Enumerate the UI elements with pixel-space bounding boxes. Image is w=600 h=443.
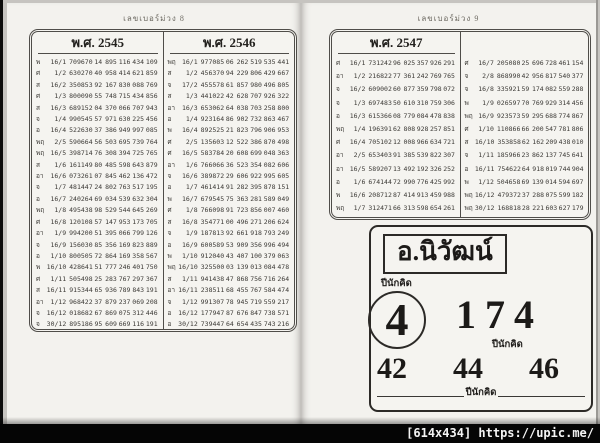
- day-abbrev: ศ: [168, 137, 179, 148]
- draw-row: จ 16/12 018682 67 869 075 312 446: [36, 308, 160, 319]
- three-digit-3: 206: [264, 217, 278, 228]
- first-prize: 428641: [69, 262, 94, 273]
- two-digit: 28: [522, 202, 532, 215]
- first-prize: 766098: [201, 205, 226, 216]
- three-digit-3: 594: [558, 176, 571, 189]
- three-digit-1: 282: [237, 182, 251, 193]
- three-digit-3: 326: [430, 163, 443, 176]
- day-abbrev: อา: [36, 297, 47, 308]
- three-digit-2: 929: [545, 97, 558, 110]
- draw-date: 1/10: [475, 123, 494, 136]
- two-digit: 51: [94, 262, 105, 273]
- three-digit-3: 632: [132, 194, 146, 205]
- draw-rows-2547b: ศ 16/7 205080 25 696 728 461 154 จ 2/8 8…: [465, 57, 586, 215]
- three-digit-3: 822: [430, 149, 443, 162]
- three-digit-4: 641: [572, 149, 585, 162]
- three-digit-2: 271: [250, 217, 264, 228]
- three-digit-3: 744: [559, 163, 572, 176]
- three-digit-2: 732: [250, 114, 264, 125]
- three-digit-4: 606: [277, 160, 291, 171]
- three-digit-4: 624: [277, 217, 291, 228]
- day-abbrev: อ: [36, 251, 47, 262]
- first-prize: 705102: [368, 136, 393, 149]
- draw-date: 30/12: [178, 319, 198, 329]
- two-digit: 50: [393, 97, 403, 110]
- three-digit-1: 654: [237, 319, 251, 329]
- three-digit-4: 800: [277, 103, 291, 114]
- booklet-page-left: เลขเบอร์ม่วง 8 พ.ศ. 2545 พ 16/1 709670 1…: [7, 3, 301, 424]
- draw-date: 1/10: [47, 251, 66, 262]
- day-abbrev: พฤ: [36, 148, 47, 159]
- day-abbrev: อ: [168, 182, 179, 193]
- three-digit-4: 216: [277, 319, 291, 329]
- three-digit-1: 147: [105, 217, 119, 228]
- day-abbrev: ศ: [465, 123, 475, 136]
- first-prize: 168818: [497, 202, 521, 215]
- three-digit-4: 010: [572, 136, 585, 149]
- three-digit-2: 928: [417, 123, 430, 136]
- three-digit-2: 544: [119, 205, 133, 216]
- three-digit-4: 494: [277, 240, 291, 251]
- three-digit-3: 540: [558, 70, 571, 83]
- two-digit: 40: [94, 68, 105, 79]
- three-digit-3: 069: [132, 297, 146, 308]
- three-digit-2: 547: [545, 123, 558, 136]
- three-digit-4: 992: [443, 176, 456, 189]
- three-digit-3: 654: [430, 202, 443, 215]
- three-digit-2: 066: [119, 228, 133, 239]
- three-digit-3: 634: [430, 136, 443, 149]
- day-abbrev: อา: [168, 285, 179, 296]
- first-prize: 912040: [201, 251, 226, 262]
- draw-date: 2/5: [178, 137, 197, 148]
- three-digit-4: 765: [443, 70, 456, 83]
- two-digit: 43: [226, 251, 237, 262]
- draw-row: ศ 1/11 505498 25 283 767 297 367: [36, 274, 160, 285]
- draw-date: 1/7: [47, 182, 66, 193]
- booklet-page-right: เลขเบอร์ม่วง 9 พ.ศ. 2547 ศ 16/1 731242 9…: [301, 3, 596, 424]
- first-prize: 994200: [69, 228, 94, 239]
- three-digit-4: 769: [146, 80, 160, 91]
- day-abbrev: จ: [168, 228, 179, 239]
- three-digit-1: 802: [105, 182, 119, 193]
- draw-row: จ 16/9 156030 85 356 169 823 889: [36, 240, 160, 251]
- three-digit-2: 310: [417, 97, 430, 110]
- first-prize: 589207: [368, 163, 393, 176]
- draw-row: พฤ 16/12 479372 37 288 075 599 182: [465, 189, 586, 202]
- three-digit-2: 763: [119, 182, 133, 193]
- three-digit-1: 777: [105, 262, 119, 273]
- day-abbrev: พ: [168, 194, 179, 205]
- year-title-2547: พ.ศ. 2547: [338, 34, 455, 54]
- watermark-text: [614x434] https://upic.me/: [406, 426, 594, 440]
- three-digit-4: 191: [146, 319, 160, 329]
- three-digit-4: 567: [146, 251, 160, 262]
- day-abbrev: ศ: [36, 68, 47, 79]
- first-prize: 766066: [201, 160, 226, 171]
- two-digit: 36: [226, 160, 237, 171]
- three-digit-3: 459: [430, 189, 443, 202]
- three-digit-4: 988: [443, 189, 456, 202]
- three-digit-3: 379: [264, 251, 278, 262]
- day-abbrev: จ: [336, 97, 346, 110]
- two-digit: 57: [94, 114, 105, 125]
- draw-row: ศ 1/3 800090 55 748 715 434 856: [36, 91, 160, 102]
- day-abbrev: อ: [36, 194, 47, 205]
- day-abbrev: พ: [168, 251, 179, 262]
- draw-date: 2/8: [475, 70, 494, 83]
- three-digit-2: 598: [417, 202, 430, 215]
- draw-row: ส 16/8 354771 00 496 271 206 624: [168, 217, 292, 228]
- day-abbrev: อ: [465, 163, 475, 176]
- two-digit: 53: [226, 240, 237, 251]
- three-digit-4: 472: [146, 171, 160, 182]
- three-digit-1: 025: [403, 57, 416, 70]
- draw-row: อา 1/12 968422 37 879 237 069 208: [36, 297, 160, 308]
- two-digit: 65: [94, 285, 105, 296]
- three-digit-2: 695: [119, 137, 133, 148]
- two-digit: 60: [393, 83, 403, 96]
- draw-date: 2/5: [346, 149, 365, 162]
- three-digit-2: 359: [417, 83, 430, 96]
- three-digit-4: 867: [572, 110, 585, 123]
- three-digit-2: 116: [119, 57, 133, 68]
- three-digit-1: 990: [403, 176, 416, 189]
- draw-row: ศ 2/5 135603 12 522 386 870 498: [168, 137, 292, 148]
- draw-date: 16/2: [47, 80, 66, 91]
- draw-row: พ 16/1 709670 14 895 116 434 109: [36, 57, 160, 68]
- day-abbrev: จ: [465, 83, 475, 96]
- three-digit-1: 522: [237, 137, 251, 148]
- three-digit-3: 312: [132, 308, 146, 319]
- three-digit-1: 609: [105, 319, 119, 329]
- three-digit-3: 645: [132, 205, 146, 216]
- prediction-label-top: ปีนักคิด: [381, 276, 591, 291]
- prediction-label-mid: ปีนักคิด: [492, 337, 543, 352]
- first-prize: 895186: [69, 319, 94, 329]
- three-digit-2: 953: [119, 217, 133, 228]
- three-digit-2: 699: [250, 148, 264, 159]
- draw-date: 16/2: [346, 83, 365, 96]
- three-digit-2: 703: [250, 103, 264, 114]
- three-digit-3: 517: [132, 182, 146, 193]
- draw-row: จ 1/4 990545 57 971 630 225 456: [36, 114, 160, 125]
- first-prize: 754622: [497, 163, 521, 176]
- three-digit-3: 643: [132, 160, 146, 171]
- two-digit: 12: [226, 137, 237, 148]
- three-digit-4: 460: [277, 205, 291, 216]
- three-digit-3: 314: [558, 97, 571, 110]
- three-digit-3: 535: [264, 57, 278, 68]
- three-digit-4: 306: [443, 97, 456, 110]
- three-digit-2: 688: [545, 110, 558, 123]
- first-prize: 110866: [497, 123, 522, 136]
- two-digit: 66: [393, 202, 403, 215]
- three-digit-3: 745: [558, 149, 571, 162]
- two-digit: 91: [226, 205, 237, 216]
- three-digit-1: 864: [105, 251, 119, 262]
- first-prize: 177947: [201, 308, 226, 319]
- two-digit: 87: [393, 189, 403, 202]
- two-digit: 78: [226, 297, 237, 308]
- three-digit-2: 767: [119, 274, 133, 285]
- prediction-number: 46: [529, 354, 559, 384]
- three-digit-2: 237: [119, 297, 133, 308]
- three-digit-1: 200: [532, 123, 545, 136]
- circled-number-badge: 4: [368, 291, 426, 349]
- three-digit-1: 361: [403, 70, 416, 83]
- two-digit: 68: [226, 285, 237, 296]
- three-digit-1: 909: [237, 240, 251, 251]
- scan-bottom-shadow: [0, 417, 600, 424]
- three-digit-2: 603: [545, 202, 558, 215]
- three-digit-4: 721: [443, 136, 456, 149]
- day-abbrev: ศ: [36, 217, 47, 228]
- draw-row: ศ 16/1 731242 96 025 357 926 291: [336, 57, 457, 70]
- first-prize: 461414: [201, 182, 226, 193]
- draw-row: จ 1/7 481447 24 802 763 517 195: [36, 182, 160, 193]
- year-column-2547-second-half: ศ 16/7 205080 25 696 728 461 154 จ 2/8 8…: [460, 32, 589, 217]
- day-abbrev: จ: [168, 297, 179, 308]
- three-digit-3: 769: [430, 70, 443, 83]
- three-digit-3: 082: [264, 160, 278, 171]
- three-digit-4: 879: [146, 160, 160, 171]
- three-digit-3: 401: [132, 262, 146, 273]
- first-prize: 600589: [201, 240, 226, 251]
- draw-date: 1/8: [47, 205, 66, 216]
- first-prize: 481447: [69, 182, 94, 193]
- three-digit-4: 697: [572, 176, 585, 189]
- three-digit-3: 799: [132, 228, 146, 239]
- three-digit-3: 759: [430, 97, 443, 110]
- two-digit: 08: [393, 110, 403, 123]
- three-digit-4: 109: [146, 57, 160, 68]
- day-abbrev: ส: [36, 80, 47, 91]
- draw-row: พฤ 16/10 325500 03 139 013 084 478: [168, 262, 292, 273]
- draw-row: พ 16/10 428641 51 777 246 401 750: [36, 262, 160, 273]
- first-prize: 590664: [69, 137, 94, 148]
- three-digit-4: 072: [443, 83, 456, 96]
- three-digit-2: 014: [545, 176, 558, 189]
- three-digit-3: 136: [132, 171, 146, 182]
- three-digit-1: 610: [403, 97, 416, 110]
- three-digit-3: 843: [132, 285, 146, 296]
- three-digit-1: 262: [237, 57, 251, 68]
- three-digit-4: 764: [146, 137, 160, 148]
- three-digit-1: 496: [237, 217, 251, 228]
- first-prize: 353858: [497, 136, 521, 149]
- first-prize: 187813: [201, 228, 226, 239]
- two-digit: 91: [393, 149, 403, 162]
- three-digit-2: 192: [417, 163, 430, 176]
- day-abbrev: ส: [168, 217, 179, 228]
- day-abbrev: จ: [465, 149, 475, 162]
- footer-line-left: [377, 396, 464, 397]
- draw-date: 1/9: [475, 97, 494, 110]
- three-digit-3: 627: [559, 202, 572, 215]
- day-abbrev: จ: [336, 83, 346, 96]
- draw-row: จ 1/11 185966 23 862 137 745 641: [465, 149, 586, 162]
- three-digit-4: 498: [277, 137, 291, 148]
- draw-date: 16/12: [475, 189, 495, 202]
- two-digit: 94: [226, 68, 237, 79]
- draw-date: 1/11: [475, 149, 494, 162]
- three-digit-3: 621: [132, 68, 146, 79]
- three-digit-1: 356: [105, 240, 119, 251]
- draw-date: 16/7: [178, 194, 197, 205]
- three-digit-2: 394: [119, 148, 133, 159]
- day-abbrev: ส: [168, 91, 179, 102]
- three-digit-3: 258: [264, 103, 278, 114]
- first-prize: 800505: [69, 251, 94, 262]
- first-prize: 609002: [368, 83, 393, 96]
- three-digit-4: 456: [572, 97, 585, 110]
- three-digit-4: 605: [277, 171, 291, 182]
- three-digit-1: 370: [105, 103, 119, 114]
- three-digit-3: 478: [430, 110, 443, 123]
- draw-row: อ 1/7 461414 91 282 395 878 151: [168, 182, 292, 193]
- first-prize: 026597: [497, 97, 522, 110]
- first-prize: 653403: [368, 149, 393, 162]
- page-header-right: เลขเบอร์ม่วง 9: [301, 3, 596, 25]
- footer-line-right: [498, 396, 585, 397]
- draw-row: ศ 16/4 705102 12 008 966 634 721: [336, 136, 457, 149]
- two-digit: 95: [94, 319, 105, 329]
- three-digit-3: 599: [559, 189, 572, 202]
- day-abbrev: พฤ: [168, 262, 179, 273]
- day-abbrev: ศ: [36, 91, 47, 102]
- three-digit-2: 357: [417, 57, 430, 70]
- two-digit: 64: [226, 103, 237, 114]
- two-digit: 64: [522, 163, 532, 176]
- three-digit-1: 407: [237, 251, 251, 262]
- two-digit: 25: [94, 274, 105, 285]
- two-digit: 98: [94, 205, 105, 216]
- day-abbrev: จ: [465, 70, 475, 83]
- three-digit-3: 434: [132, 57, 146, 68]
- day-abbrev: พฤ: [336, 202, 346, 215]
- three-digit-1: 139: [237, 262, 251, 273]
- draw-row: จ 16/8 335921 59 174 082 559 288: [465, 83, 586, 96]
- draw-rows-2545: พ 16/1 709670 14 895 116 434 109 ศ 1/2 6…: [36, 57, 160, 329]
- three-digit-4: 571: [277, 308, 291, 319]
- draw-row: จ 1/3 697483 50 610 310 759 306: [336, 97, 457, 110]
- first-prize: 630270: [69, 68, 94, 79]
- two-digit: 37: [522, 189, 532, 202]
- three-digit-2: 100: [250, 251, 264, 262]
- draw-date: 1/4: [346, 123, 365, 136]
- prediction-box: อ.นิวัฒน์ ปีนักคิด 4 174 ปีนักคิด 42 44 …: [369, 225, 593, 412]
- first-prize: 354771: [201, 217, 226, 228]
- day-abbrev: ส: [36, 285, 47, 296]
- three-digit-4: 085: [146, 125, 160, 136]
- three-digit-2: 209: [545, 136, 558, 149]
- two-digit: 77: [393, 70, 403, 83]
- first-prize: 185966: [497, 149, 522, 162]
- draw-row: อา 16/5 589207 13 492 192 326 252: [336, 163, 457, 176]
- day-abbrev: ศ: [336, 57, 346, 70]
- draw-row: ศ 1/8 766098 91 723 856 007 460: [168, 205, 292, 216]
- two-digit: 42: [522, 70, 532, 83]
- three-digit-3: 870: [264, 137, 278, 148]
- first-prize: 398714: [69, 148, 94, 159]
- scan-left-edge: [0, 0, 3, 443]
- draw-row: จ 16/6 389872 29 606 922 995 605: [168, 171, 292, 182]
- draw-row: อา 16/6 073261 07 845 462 136 472: [36, 171, 160, 182]
- draw-row: ส 16/11 915344 65 936 789 843 191: [36, 285, 160, 296]
- three-digit-1: 918: [532, 163, 545, 176]
- three-digit-4: 474: [277, 285, 291, 296]
- three-digit-4: 291: [443, 57, 456, 70]
- three-digit-3: 738: [264, 308, 278, 319]
- day-abbrev: จ: [36, 308, 47, 319]
- three-digit-3: 496: [264, 80, 278, 91]
- three-digit-4: 288: [572, 83, 585, 96]
- three-digit-1: 779: [403, 110, 416, 123]
- first-prize: 892525: [201, 125, 226, 136]
- draw-date: 1/2: [178, 68, 197, 79]
- three-digit-3: 995: [264, 171, 278, 182]
- two-digit: 85: [94, 240, 105, 251]
- two-digit: 72: [393, 176, 403, 189]
- three-digit-3: 823: [132, 240, 146, 251]
- day-abbrev: พ: [465, 97, 475, 110]
- three-digit-4: 705: [146, 217, 160, 228]
- three-digit-3: 743: [264, 319, 278, 329]
- three-digit-1: 723: [237, 205, 251, 216]
- draw-row: อ 16/3 615366 08 779 084 478 838: [336, 110, 457, 123]
- first-prize: 495438: [69, 205, 94, 216]
- two-digit: 62: [393, 123, 403, 136]
- three-digit-4: 195: [146, 182, 160, 193]
- day-abbrev: อ: [168, 240, 179, 251]
- three-digit-4: 467: [277, 114, 291, 125]
- three-digit-4: 889: [146, 240, 160, 251]
- three-digit-4: 304: [146, 194, 160, 205]
- three-digit-4: 151: [277, 182, 291, 193]
- three-digit-3: 798: [430, 83, 443, 96]
- three-digit-1: 936: [105, 285, 119, 296]
- three-digit-2: 519: [250, 57, 264, 68]
- three-digit-2: 830: [119, 80, 133, 91]
- three-digit-3: 559: [264, 297, 278, 308]
- results-table-2547: พ.ศ. 2547 ศ 16/1 731242 96 025 357 926 2…: [329, 29, 591, 220]
- three-digit-3: 739: [132, 137, 146, 148]
- three-digit-4: 953: [277, 125, 291, 136]
- day-abbrev: อ: [336, 110, 346, 123]
- three-digit-1: 139: [532, 176, 545, 189]
- draw-row: ส 16/3 689152 04 370 066 707 943: [36, 103, 160, 114]
- day-abbrev: ศ: [168, 148, 179, 159]
- day-abbrev: ศ: [336, 136, 346, 149]
- draw-date: 16/10: [178, 262, 198, 273]
- day-abbrev: จ: [168, 80, 179, 91]
- draw-date: 16/1: [346, 57, 365, 70]
- three-digit-1: 895: [105, 57, 119, 68]
- prediction-mid-row: 4 174 ปีนักคิด: [371, 291, 591, 352]
- three-digit-1: 008: [403, 136, 416, 149]
- draw-date: 16/11: [475, 163, 495, 176]
- draw-date: 1/12: [47, 297, 66, 308]
- draw-row: พฤ 1/8 495438 98 529 544 645 269: [36, 205, 160, 216]
- three-digit-3: 926: [430, 57, 443, 70]
- draw-row: ส 16/2 350853 92 167 830 088 769: [36, 80, 160, 91]
- draw-row: อ 30/12 739447 64 654 435 743 216: [168, 319, 292, 329]
- draw-date: 16/5: [47, 148, 66, 159]
- draw-date: 16/10: [47, 262, 67, 273]
- draw-row: พ 1/10 912040 43 407 100 379 063: [168, 251, 292, 262]
- three-digit-2: 169: [119, 251, 133, 262]
